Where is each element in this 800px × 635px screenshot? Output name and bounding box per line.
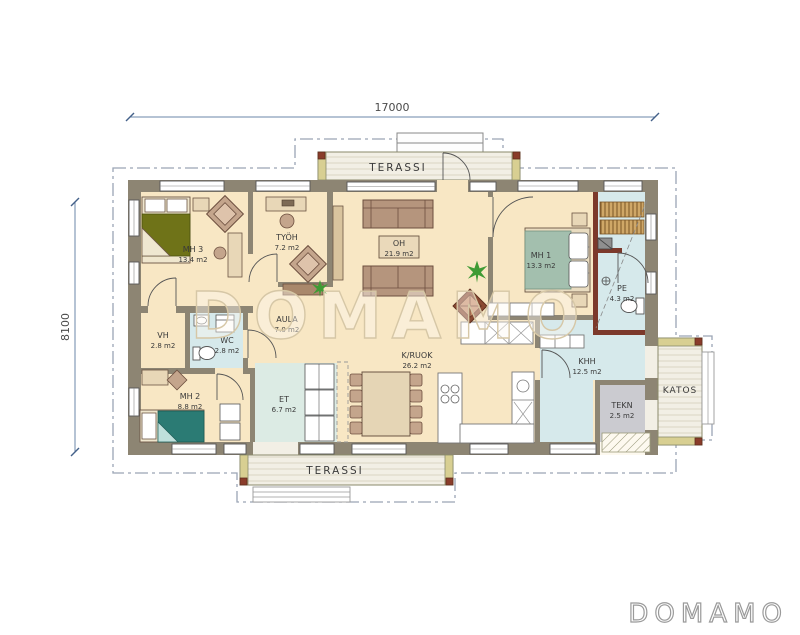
nightstand-mh3: [193, 198, 209, 211]
roof-window: [397, 133, 483, 153]
room-vh-label: VH: [157, 331, 169, 340]
room-oh-label: OH: [393, 239, 405, 248]
room-mh3-label: MH 3: [183, 245, 204, 254]
room-tyoh-area: 7.2 m2: [275, 244, 300, 252]
shelf-oh: [333, 206, 343, 280]
brand-logo: DOMAMO: [628, 599, 788, 629]
room-tekn-area: 2.5 m2: [610, 412, 635, 420]
terrace-bottom: TERASSI: [240, 455, 453, 502]
room-kruok-area: 26.2 m2: [402, 362, 431, 370]
bed-mh2: [140, 410, 204, 442]
room-khh-label: KHH: [578, 357, 595, 366]
room-et-area: 6.7 m2: [272, 406, 297, 414]
terrace-bottom-label: TERASSI: [305, 465, 364, 477]
room-oh-area: 21.9 m2: [384, 250, 413, 258]
katos-label: KATOS: [663, 386, 698, 396]
watermark-text: DOMAMO: [191, 280, 590, 354]
room-mh2-label: MH 2: [180, 392, 201, 401]
dimension-left: 8100: [59, 198, 79, 456]
nightstand-mh1-top: [572, 213, 587, 226]
sofa-top: [363, 200, 433, 228]
floor-plan-image: 17000 8100 TERASSI: [0, 0, 800, 635]
room-tekn-label: TEKN: [610, 401, 632, 410]
dimension-top: 17000: [126, 101, 659, 121]
room-mh1-label: MH 1: [531, 251, 552, 260]
floor-drain-icon: [602, 277, 610, 285]
dimension-width-label: 17000: [375, 101, 410, 114]
entrance-hatch: [602, 433, 650, 452]
wardrobe-et: [305, 364, 334, 441]
room-pe-label: PE: [617, 284, 627, 293]
floor-plan-svg: 17000 8100 TERASSI: [0, 0, 800, 635]
room-khh-area: 12.5 m2: [572, 368, 601, 376]
room-mh3-area: 13.4 m2: [178, 256, 207, 264]
dimension-height-label: 8100: [59, 313, 72, 341]
room-mh2-area: 8.8 m2: [178, 403, 203, 411]
room-et-label: ET: [279, 395, 289, 404]
terrace-top-label: TERASSI: [368, 162, 427, 174]
room-pe-area: 4.3 m2: [610, 295, 635, 303]
katos-deck: KATOS: [658, 338, 714, 445]
sauna-stove: [598, 238, 612, 249]
tall-cabinet-column: [512, 372, 534, 428]
room-vh-area: 2.8 m2: [151, 342, 176, 350]
terrace-top: TERASSI: [318, 152, 520, 180]
room-mh1-area: 13.3 m2: [526, 262, 555, 270]
room-tyoh-label: TYÖH: [275, 232, 298, 242]
